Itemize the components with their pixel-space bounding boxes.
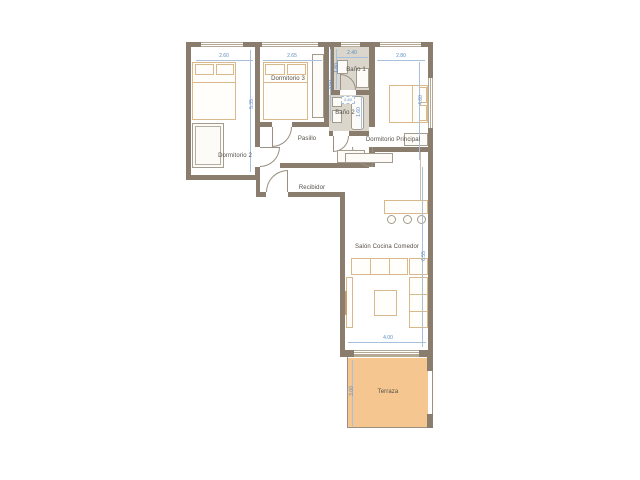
stool-icon [403, 215, 412, 224]
dorm2-pillow-icon [216, 64, 234, 75]
bath2-door-leaf-icon [333, 136, 334, 152]
wall-left [186, 42, 191, 180]
wall-terrace-right-bottom [427, 414, 433, 428]
dim-line-dorm2-width [196, 60, 253, 61]
dim-label-bath2-width: 2.40 [341, 96, 355, 104]
entry-door-arc-icon [266, 170, 288, 192]
room-label-bano-1: Baño 1 [341, 66, 371, 74]
wall-salon-bottom-left [340, 350, 354, 357]
room-label-pasillo: Pasillo [287, 135, 327, 143]
dim-label-salon-width: 4.00 [376, 334, 400, 342]
sofa-cushion-line [370, 258, 371, 275]
wall-recibidor-bottom-right [288, 192, 345, 197]
kitchen-island-connector-line [420, 152, 421, 200]
wall-pasillo-recibidor [280, 163, 369, 168]
dorm2-door-leaf-icon [260, 147, 280, 148]
wall-dormp-bottom [369, 147, 433, 152]
dim-label-dorm3-width: 2.65 [280, 52, 304, 60]
wall-salon-right [428, 152, 433, 357]
window-dormp-top [380, 42, 421, 47]
coffee-table-icon [374, 290, 397, 316]
dim-label-bath1-width: 2.40 [340, 49, 364, 57]
dorm3-pillow-icon [287, 64, 306, 75]
wall-dorm2-bottom [186, 175, 260, 180]
wall-terrace-right-top [427, 357, 433, 371]
wall-salon-bottom-right [419, 350, 433, 357]
dormp-bed-fold-line [412, 85, 413, 123]
dim-label-dormp-width: 2.80 [389, 52, 413, 60]
dim-label-dorm2-height: 5.35 [248, 92, 256, 116]
sofa-chaise-icon [409, 277, 428, 328]
dim-line-dormp-width [377, 60, 425, 61]
dorm3-wardrobe-icon [312, 54, 324, 118]
dorm2-bed-fold-line [192, 82, 236, 83]
dim-line-bath1-width [337, 57, 368, 58]
dorm3-pillow-icon [265, 64, 285, 75]
sofa-cushion-line [409, 311, 428, 312]
tv-console-icon [346, 277, 353, 328]
wall-recibidor-bottom-left [258, 192, 266, 197]
floor-plan: 2.60 2.65 2.40 2.80 5.35 3.50 1.80 4.60 … [0, 0, 640, 480]
dim-line-dorm3-width [263, 60, 322, 61]
terrace-right-edge [432, 371, 433, 414]
room-label-recibidor: Recibidor [287, 184, 337, 192]
sofa-icon [351, 258, 408, 275]
wall-salon-left [340, 197, 345, 357]
wall-dormp-left-upper [369, 47, 375, 127]
room-label-dormitorio-principal: Dormitorio Principal [357, 136, 429, 144]
room-label-dormitorio-2: Dormitorio 2 [203, 152, 267, 160]
window-terrace-slider [354, 350, 419, 357]
sofa-cushion-line [409, 294, 428, 295]
dim-label-dorm2-width: 2.60 [212, 52, 236, 60]
terrace-bottom-edge [347, 427, 428, 428]
wall-dorm2-divider-lower [255, 167, 260, 175]
window-dorm2 [201, 42, 243, 47]
window-dorm3 [262, 42, 318, 47]
sofa-cushion-line [389, 258, 390, 275]
dim-label-terrace-depth: 3.00 [348, 379, 356, 403]
room-label-bano-2: Baño 2 [330, 109, 360, 117]
dim-label-dormp-height: 4.60 [417, 88, 425, 112]
room-label-salon: Salón Cocina Comedor [347, 243, 427, 251]
room-label-terraza: Terraza [358, 388, 418, 396]
room-label-dormitorio-3: Dormitorio 3 [258, 75, 318, 83]
window-dormp-right [428, 78, 433, 128]
dorm2-pillow-icon [195, 64, 214, 75]
dorm3-door-leaf-icon [272, 127, 273, 147]
wall-right-upper [428, 42, 433, 78]
wall-dorm3-bottom-left [255, 122, 272, 127]
kitchen-counter-icon [345, 153, 393, 163]
tv-icon [345, 291, 347, 315]
dim-line-salon-width [348, 342, 426, 343]
dim-label-bath1-height: 1.80 [333, 56, 341, 80]
stool-icon [387, 215, 396, 224]
window-bath1 [341, 42, 360, 47]
